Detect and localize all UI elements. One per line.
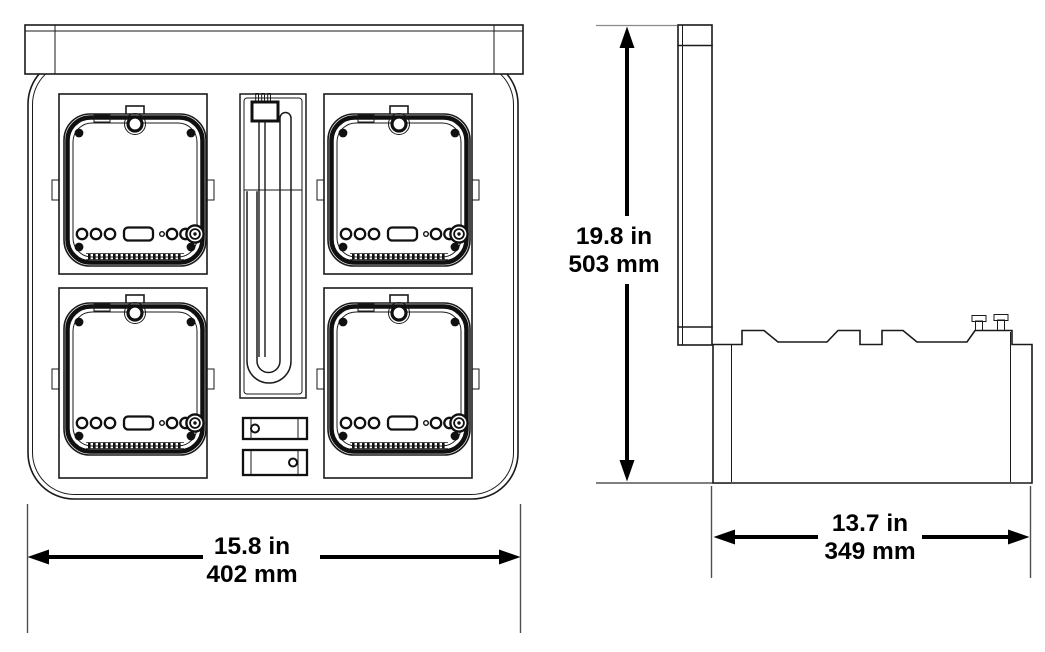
fixture-unit-top-left (64, 106, 206, 266)
lid-bar-face (25, 25, 523, 74)
dimension-depth-metric: 349 mm (824, 538, 915, 565)
lid-panel (678, 25, 712, 345)
arrowhead-left-icon (28, 550, 50, 565)
dimension-width-metric: 402 mm (206, 561, 297, 588)
latch-post-stem (998, 320, 1005, 331)
case-lid-bar (25, 25, 523, 74)
dimension-height-metric: 503 mm (568, 251, 659, 278)
dimensional-drawing-canvas: 15.8 in 402 mm 19.8 in 503 mm (0, 0, 1045, 652)
dimension-depth-imperial: 13.7 in (832, 510, 908, 537)
arrowhead-right-icon (499, 550, 521, 565)
arrowhead-up-icon (620, 27, 635, 49)
power-plug (252, 102, 278, 121)
lid-panel-body (678, 25, 712, 345)
fixture-unit-top-right (328, 106, 470, 266)
latch-post-right (994, 315, 1008, 331)
case-base-outline (713, 331, 1032, 484)
latch-hole (289, 459, 297, 467)
dimension-width: 15.8 in 402 mm (28, 504, 521, 633)
charging-case-dimension-diagram: 15.8 in 402 mm 19.8 in 503 mm (0, 0, 1045, 652)
fixture-unit-bottom-left (64, 295, 206, 455)
arrowhead-down-icon (620, 460, 635, 482)
fixture-unit-bottom-right (328, 295, 470, 455)
arrowhead-right-icon (1008, 530, 1030, 545)
arrowhead-left-icon (714, 530, 736, 545)
side-view: 19.8 in 503 mm (568, 25, 1032, 578)
dimension-height-imperial: 19.8 in (576, 223, 652, 250)
dimension-width-imperial: 15.8 in (214, 533, 290, 560)
latch-post-left (972, 316, 986, 331)
dimension-depth: 13.7 in 349 mm (712, 486, 1031, 578)
case-base (713, 315, 1032, 484)
latch-hole (251, 425, 259, 433)
front-view: 15.8 in 402 mm (25, 25, 523, 633)
latch-post-stem (976, 321, 983, 331)
